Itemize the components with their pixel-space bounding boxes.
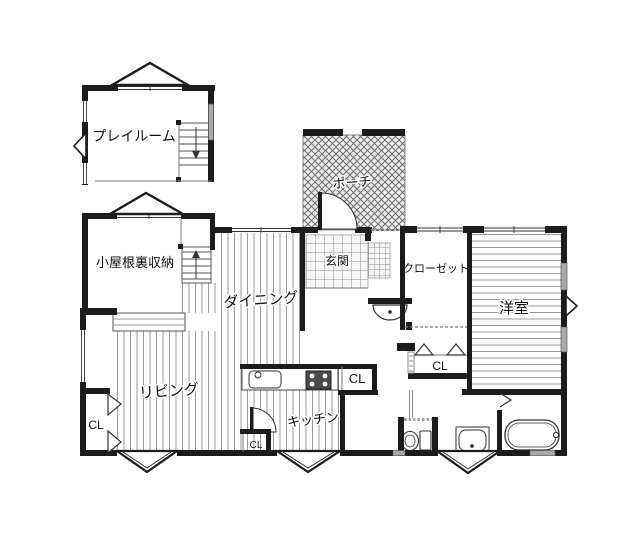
attic-storage-label: 小屋根裏収納 <box>96 255 174 270</box>
stairs-playroom-down <box>176 120 211 182</box>
accordion-strip <box>408 352 414 373</box>
hall-cl-door2 <box>447 344 465 355</box>
western-room-label: 洋室 <box>499 300 529 317</box>
kitchen-sink-icon <box>249 371 281 388</box>
toilet-icon <box>402 431 432 451</box>
hall-cl-door <box>415 344 433 355</box>
bath-door-mark <box>500 393 511 407</box>
entrance-label: 玄関 <box>325 253 349 268</box>
bathtub-icon <box>505 420 559 450</box>
washbasin-icon <box>456 427 489 453</box>
entrance-step-tile <box>368 243 390 278</box>
playroom-bay-window <box>74 133 86 159</box>
kitchen-door-leaf <box>250 407 254 432</box>
playroom-gable <box>112 63 188 85</box>
living-cl-label: CL <box>88 418 104 432</box>
kitchen-floor-cl-label: CL <box>250 440 263 451</box>
floor-plan-svg: プレイルーム 小屋根裏収納 ダイニング リビング キッチン ポーチ 玄関 クロー… <box>0 0 639 543</box>
western-room-bay-window <box>566 296 577 316</box>
kitchen-counter-cl-label: CL <box>349 371 366 386</box>
kitchen-counter <box>242 368 338 390</box>
playroom-label: プレイルーム <box>92 128 176 144</box>
stove-icon <box>306 371 331 389</box>
attic-gable <box>110 193 183 214</box>
stair-landing-floor <box>182 283 216 313</box>
hall-cl-label: CL <box>432 359 448 373</box>
closet-label: クローゼット <box>403 262 469 275</box>
builtin-counter <box>113 313 185 331</box>
porch-label: ポーチ <box>332 174 372 192</box>
stairs-attic-up <box>178 218 211 283</box>
floor-plan: プレイルーム 小屋根裏収納 ダイニング リビング キッチン ポーチ 玄関 クロー… <box>0 0 639 543</box>
